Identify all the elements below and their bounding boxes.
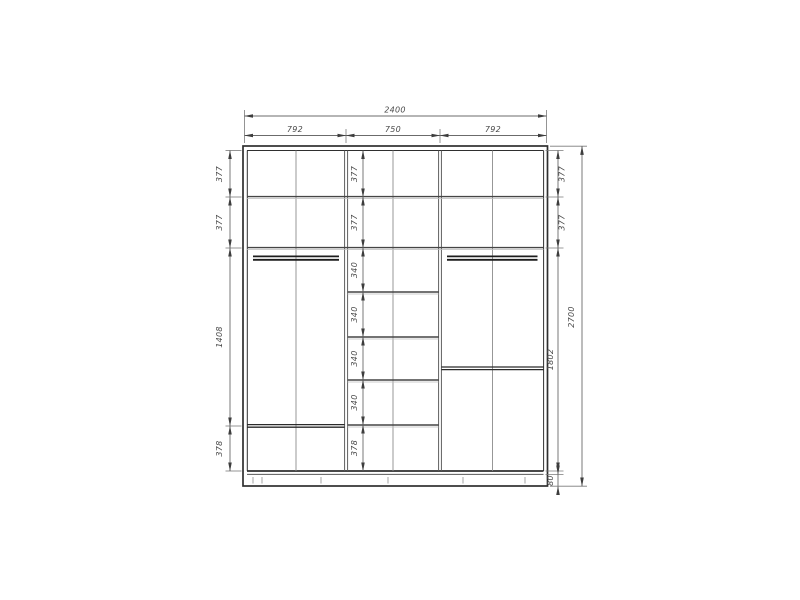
- dim-label-middle-5: 340: [350, 394, 359, 410]
- dim-label-middle-0: 377: [350, 165, 359, 182]
- dimension-left-column: 377 377 1408 378: [215, 151, 242, 472]
- dimension-right-column: 377 377 1802 80: [546, 151, 567, 495]
- dim-label-section-3-width: 792: [485, 125, 501, 134]
- dim-label-middle-2: 340: [350, 262, 359, 278]
- dim-label-right-3: 80: [546, 475, 555, 486]
- plinth-ticks: [253, 477, 525, 484]
- dim-label-total-width: 2400: [384, 106, 406, 115]
- dim-label-middle-1: 377: [350, 214, 359, 231]
- dim-label-right-0: 377: [558, 165, 567, 182]
- dim-label-right-2: 1802: [546, 349, 555, 371]
- dim-label-left-2: 1408: [215, 326, 224, 348]
- dim-label-left-1: 377: [215, 214, 224, 231]
- dim-label-total-height: 2700: [567, 306, 576, 328]
- dim-label-middle-6: 378: [350, 440, 359, 456]
- shelves: [247, 197, 544, 428]
- dim-label-section-1-width: 792: [287, 125, 303, 134]
- dim-label-left-0: 377: [215, 165, 224, 182]
- dim-label-section-2-width: 750: [385, 125, 401, 134]
- dim-label-middle-3: 340: [350, 306, 359, 322]
- wardrobe-elevation-drawing: 2400 792 750 792 377 377 1408 378 377 37…: [0, 0, 800, 600]
- dim-label-left-3: 378: [215, 440, 224, 456]
- page: 2400 792 750 792 377 377 1408 378 377 37…: [0, 0, 800, 600]
- dim-label-right-1: 377: [558, 214, 567, 231]
- dim-label-middle-4: 340: [350, 350, 359, 366]
- dimension-top-width: 2400 792 750 792: [245, 106, 547, 144]
